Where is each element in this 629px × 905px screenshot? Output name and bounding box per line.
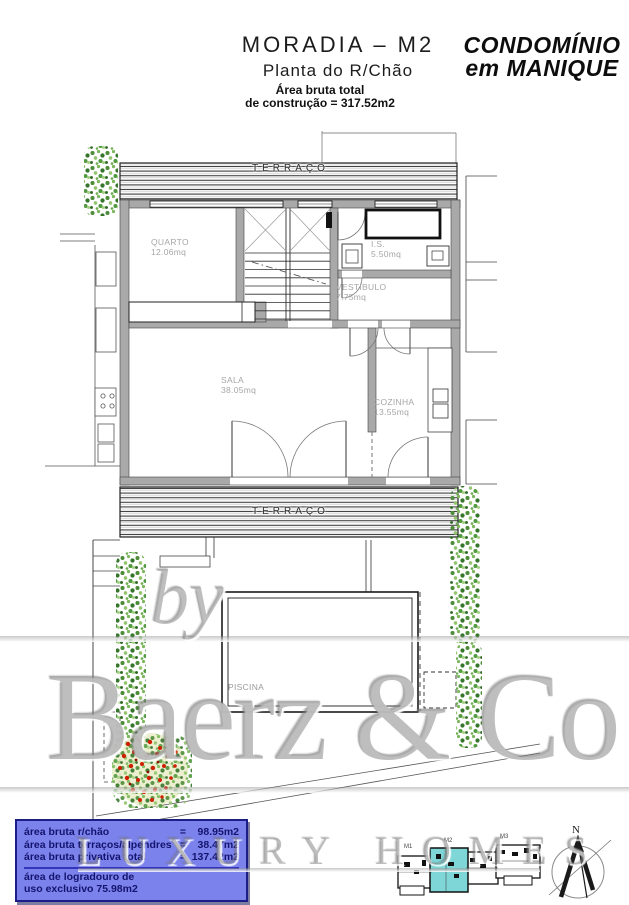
room-label-sala: SALA 38.05mq xyxy=(221,375,256,395)
room-label-cozinha: COZINHA 13.55mq xyxy=(374,397,414,417)
room-label-vestibulo: VESTÍBULO 7.75mq xyxy=(336,282,386,302)
terrace-top-label: TERRAÇO xyxy=(252,163,329,174)
info-box-divider xyxy=(24,867,239,869)
site-plan-unit-label-m2: M2 xyxy=(444,838,452,844)
area-footer-line2: uso exclusivo 75.98m2 xyxy=(24,883,239,896)
neighbour-right-lines xyxy=(466,176,497,484)
site-plan-unit-label-m3: M3 xyxy=(500,834,508,840)
plot-boundary-lines xyxy=(322,131,456,163)
pool xyxy=(222,592,456,712)
neighbour-left-fixtures xyxy=(45,234,121,466)
north-arrow-icon xyxy=(549,836,611,898)
development-name-line1: CONDOMÍNIO xyxy=(458,34,626,57)
page-title: MORADIA – M2 xyxy=(218,32,458,58)
area-summary-box: área bruta r/chão = 98.95m2 área bruta t… xyxy=(15,819,248,902)
flower-bed xyxy=(112,733,192,808)
page-subtitle: Planta do R/Chão xyxy=(218,61,458,81)
terrace-bottom-label: TERRAÇO xyxy=(252,506,329,517)
area-row-terracos: área bruta terraços/alpendres = 38.47m2 xyxy=(24,839,239,852)
pool-label: PISCINA xyxy=(228,682,264,692)
floor-plan-page: MORADIA – M2 Planta do R/Chão Área bruta… xyxy=(0,0,629,905)
floor-plan-drawing xyxy=(0,0,629,905)
title-block: MORADIA – M2 Planta do R/Chão xyxy=(218,32,458,81)
area-row-rchao: área bruta r/chão = 98.95m2 xyxy=(24,826,239,839)
room-label-is: I.S. 5.50mq xyxy=(371,239,401,259)
development-name-line2: em MANIQUE xyxy=(458,57,626,80)
site-plan-unit-label-m1: M1 xyxy=(404,844,412,850)
area-row-privativa: área bruta privativa total = 137.42m2 xyxy=(24,851,239,864)
room-label-quarto: QUARTO 12.06mq xyxy=(151,237,189,257)
north-label: N xyxy=(572,824,580,836)
area-footer-line1: área de logradouro de xyxy=(24,871,239,884)
site-plan xyxy=(398,845,540,895)
gross-area-note: Área bruta total de construção = 317.52m… xyxy=(218,84,422,110)
development-name: CONDOMÍNIO em MANIQUE xyxy=(458,34,626,80)
gross-area-line2: de construção = 317.52m2 xyxy=(218,97,422,110)
closet xyxy=(129,302,255,322)
